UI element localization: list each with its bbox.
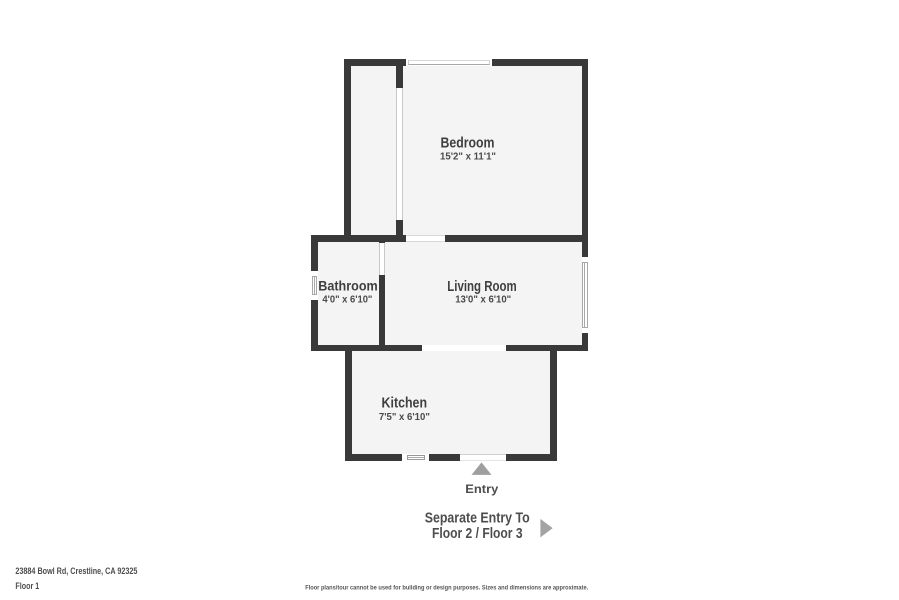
svg-text:Entry: Entry <box>465 482 498 496</box>
svg-text:23884 Bowl Rd, Crestline, CA 9: 23884 Bowl Rd, Crestline, CA 92325 <box>15 566 137 576</box>
svg-text:Floor 2 / Floor 3: Floor 2 / Floor 3 <box>432 525 523 542</box>
svg-text:Bedroom: Bedroom <box>441 135 495 152</box>
svg-text:13'0" x 6'10": 13'0" x 6'10" <box>455 294 511 306</box>
svg-text:Living Room: Living Room <box>447 279 517 295</box>
svg-text:Floor 1: Floor 1 <box>15 581 39 591</box>
svg-text:Kitchen: Kitchen <box>382 395 428 412</box>
svg-text:15'2" x 11'1": 15'2" x 11'1" <box>440 151 496 163</box>
svg-text:7'5" x 6'10": 7'5" x 6'10" <box>379 411 430 423</box>
svg-text:Floor plans/tour cannot be use: Floor plans/tour cannot be used for buil… <box>305 584 588 591</box>
svg-text:4'0" x 6'10": 4'0" x 6'10" <box>322 294 372 306</box>
svg-text:Bathroom: Bathroom <box>318 278 378 293</box>
svg-text:Separate Entry To: Separate Entry To <box>425 509 530 526</box>
